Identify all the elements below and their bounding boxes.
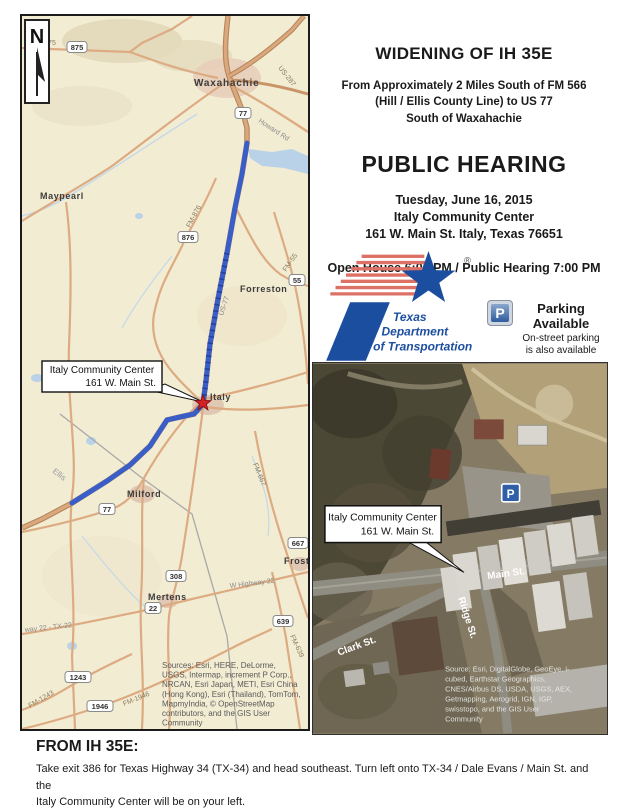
town-mertens: Mertens	[148, 592, 187, 602]
project-subtitle-3: South of Waxahachie	[310, 111, 618, 127]
hearing-date: Tuesday, June 16, 2015	[310, 192, 618, 209]
directions-text: Take exit 386 for Texas Highway 34 (TX-3…	[36, 761, 601, 811]
map-callout-line2: 161 W. Main St.	[85, 378, 156, 389]
map-src-3: (Hong Kong), Esri (Thailand), TomTom,	[162, 690, 301, 699]
aerial-parking-letter: P	[507, 487, 515, 501]
hearing-address: 161 W. Main St. Italy, Texas 76651	[310, 226, 618, 243]
parking-title-2: Available	[518, 316, 604, 331]
registered-mark: ®	[464, 255, 471, 266]
aerial-src-0: Source: Esri, DigitalGlobe, GeoEye, i-	[445, 665, 570, 674]
aerial-src-3: Getmapping, Aerogrid, IGN, IGP,	[445, 694, 553, 703]
parking-note-1: On-street parking	[512, 333, 610, 345]
aerial-src-5: Community	[445, 714, 483, 723]
txdot-logo: ® Texas Department of Transportation	[324, 250, 486, 367]
project-subtitle-2: (Hill / Ellis County Line) to US 77	[310, 94, 618, 110]
map-src-5: contributors, and the GIS User	[162, 709, 270, 718]
aerial-src-4: swisstopo, and the GIS User	[445, 704, 540, 713]
aerial-callout-line2: 161 W. Main St.	[361, 527, 434, 538]
aerial-parking-icon: P	[502, 484, 520, 502]
north-label: N	[30, 26, 44, 48]
town-waxahachie: Waxahachie	[194, 78, 259, 89]
map-src-0: Sources: Esri, HERE, DeLorme,	[162, 661, 276, 670]
town-forreston: Forreston	[240, 284, 287, 294]
map-src-1: USGS, Intermap, increment P Corp.,	[162, 671, 292, 680]
aerial-src-2: CNES/Airbus DS, USDA, USGS, AEX,	[445, 685, 572, 694]
hearing-venue: Italy Community Center	[310, 209, 618, 226]
project-title: WIDENING OF IH 35E	[310, 44, 618, 64]
parking-sign-letter: P	[491, 304, 509, 322]
map-src-2: NRCAN, Esri Japan, METI, Esri China	[162, 680, 298, 689]
directions-line2: Italy Community Center will be on your l…	[36, 794, 601, 811]
shield-639: 639	[277, 617, 290, 626]
parking-title-1: Parking	[518, 301, 604, 316]
parking-sign-icon: P	[487, 300, 513, 326]
shield-77-north: 77	[239, 109, 247, 118]
shield-55: 55	[293, 276, 301, 285]
town-frost: Frost	[284, 556, 308, 566]
town-italy: Italy	[210, 392, 231, 402]
shield-1946: 1946	[92, 702, 109, 711]
logo-text-2: Department	[381, 325, 449, 339]
aerial-src-1: cubed, Earthstar Geographics,	[445, 675, 546, 684]
shield-876: 876	[182, 233, 195, 242]
shield-875: 875	[71, 43, 84, 52]
shield-77-south: 77	[103, 505, 111, 514]
aerial-photo: P Main St. Clark St. Ridge St. Italy Com…	[312, 362, 608, 735]
shield-22: 22	[149, 604, 157, 613]
project-location-map: 875 77 876 55 77 667 308 22 639 1243 194…	[20, 14, 310, 731]
parking-note-2: is also available	[512, 345, 610, 357]
aerial-callout-line1: Italy Community Center	[328, 513, 437, 524]
map-src-4: MapmyIndia, © OpenStreetMap	[162, 699, 275, 708]
directions-line1: Take exit 386 for Texas Highway 34 (TX-3…	[36, 761, 601, 794]
town-maypearl: Maypearl	[40, 191, 84, 201]
map-src-6: Community	[162, 719, 202, 728]
town-milford: Milford	[127, 489, 161, 499]
directions-heading: FROM IH 35E:	[36, 738, 138, 756]
shield-1243: 1243	[70, 673, 87, 682]
logo-text-3: of Transportation	[373, 339, 472, 353]
shield-308: 308	[170, 572, 183, 581]
north-arrow-icon: N	[25, 20, 49, 103]
notice-text-column: WIDENING OF IH 35E From Approximately 2 …	[310, 44, 618, 275]
hearing-title: PUBLIC HEARING	[310, 151, 618, 178]
logo-text-1: Texas	[393, 310, 427, 324]
map-callout-line1: Italy Community Center	[50, 365, 155, 376]
shield-667: 667	[292, 539, 305, 548]
project-subtitle-1: From Approximately 2 Miles South of FM 5…	[310, 78, 618, 94]
